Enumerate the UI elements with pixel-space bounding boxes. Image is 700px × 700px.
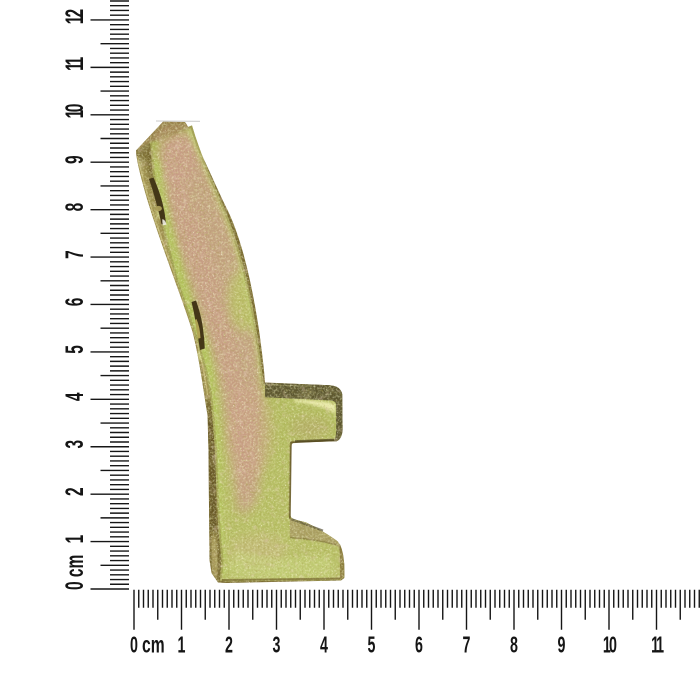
svg-text:5: 5 (368, 633, 376, 658)
svg-text:3: 3 (61, 440, 89, 449)
svg-text:7: 7 (463, 633, 471, 658)
svg-text:6: 6 (61, 298, 89, 307)
svg-text:4: 4 (320, 633, 328, 658)
svg-text:4: 4 (61, 392, 89, 401)
svg-text:10: 10 (603, 633, 617, 658)
svg-text:9: 9 (61, 155, 89, 164)
svg-text:2: 2 (225, 633, 233, 658)
svg-text:8: 8 (61, 203, 89, 212)
svg-text:10: 10 (61, 104, 89, 118)
svg-text:7: 7 (61, 250, 89, 259)
svg-text:6: 6 (415, 633, 423, 658)
svg-text:0 cm: 0 cm (61, 555, 89, 590)
svg-text:2: 2 (61, 487, 89, 496)
svg-text:12: 12 (61, 9, 89, 24)
svg-text:1: 1 (178, 633, 186, 658)
svg-text:5: 5 (61, 345, 89, 354)
svg-text:cm: cm (142, 632, 165, 658)
svg-text:3: 3 (273, 633, 281, 658)
svg-text:1: 1 (61, 535, 89, 544)
svg-text:8: 8 (510, 633, 518, 658)
svg-text:9: 9 (558, 633, 566, 658)
svg-text:0: 0 (130, 633, 138, 658)
svg-text:11: 11 (61, 57, 89, 71)
